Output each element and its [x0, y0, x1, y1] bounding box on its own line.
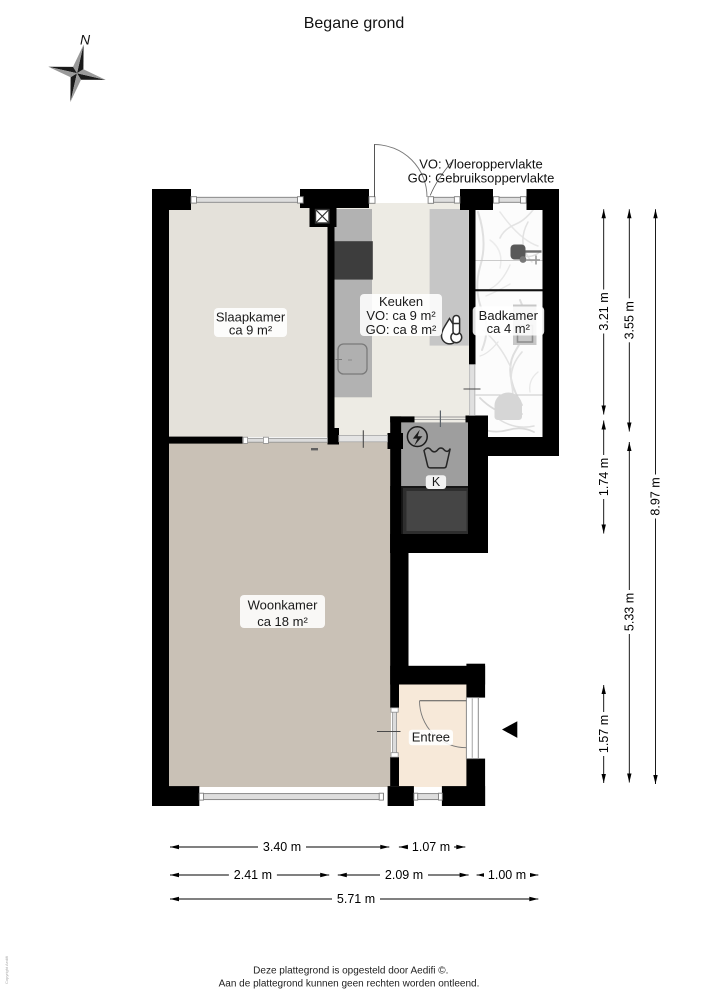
svg-text:3.55 m: 3.55 m: [623, 301, 637, 339]
svg-text:1.07 m: 1.07 m: [412, 840, 450, 854]
svg-text:GO: Gebruiksoppervlakte: GO: Gebruiksoppervlakte: [408, 171, 555, 186]
svg-text:Entree: Entree: [412, 730, 450, 745]
svg-text:3.40 m: 3.40 m: [263, 840, 301, 854]
svg-text:K: K: [432, 475, 441, 489]
svg-text:Deze plattegrond is opgesteld: Deze plattegrond is opgesteld door Aedif…: [253, 966, 448, 977]
svg-text:ca 9 m²: ca 9 m²: [229, 323, 273, 338]
svg-text:Copyright Aedifi: Copyright Aedifi: [4, 956, 9, 984]
svg-text:Woonkamer: Woonkamer: [248, 598, 319, 613]
svg-text:Begane grond: Begane grond: [304, 15, 405, 32]
svg-text:ca 4 m²: ca 4 m²: [487, 321, 531, 336]
svg-text:1.74 m: 1.74 m: [597, 458, 611, 496]
svg-text:Aan de plattegrond kunnen geen: Aan de plattegrond kunnen geen rechten w…: [219, 979, 480, 990]
svg-text:Keuken: Keuken: [379, 294, 423, 309]
svg-text:GO: ca 8 m²: GO: ca 8 m²: [366, 322, 437, 337]
svg-text:VO: ca 9 m²: VO: ca 9 m²: [366, 308, 436, 323]
svg-text:3.21 m: 3.21 m: [597, 292, 611, 330]
svg-text:5.71 m: 5.71 m: [337, 892, 375, 906]
svg-text:8.97 m: 8.97 m: [649, 477, 663, 515]
svg-text:ca 18 m²: ca 18 m²: [257, 614, 308, 629]
svg-text:2.09 m: 2.09 m: [385, 868, 423, 882]
svg-text:N: N: [80, 32, 91, 48]
svg-text:1.57 m: 1.57 m: [597, 715, 611, 753]
svg-text:VO: Vloeroppervlakte: VO: Vloeroppervlakte: [419, 157, 543, 172]
svg-text:5.33 m: 5.33 m: [623, 593, 637, 631]
svg-text:1.00 m: 1.00 m: [488, 868, 526, 882]
svg-text:2.41 m: 2.41 m: [234, 868, 272, 882]
